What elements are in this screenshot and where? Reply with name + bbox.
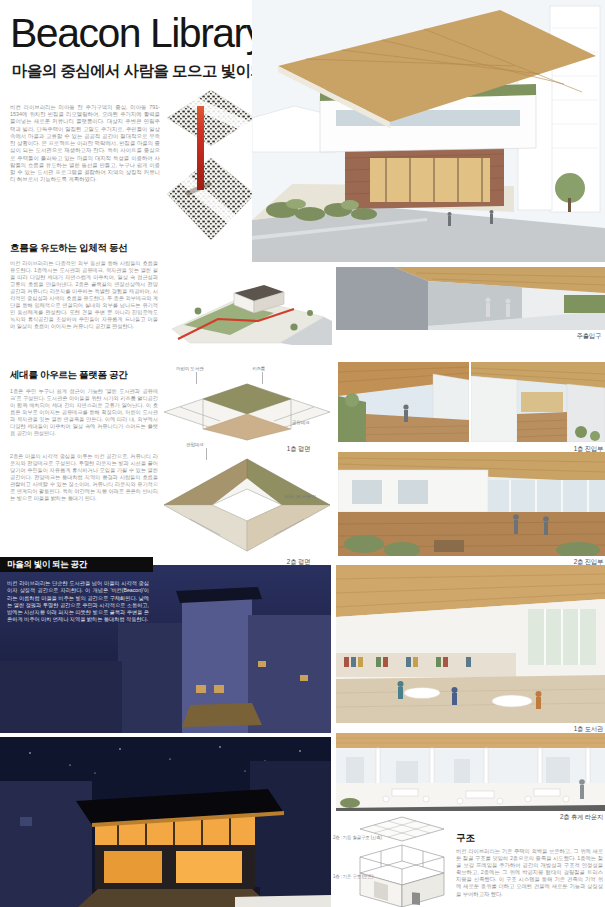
section-structure-title: 구조	[456, 832, 475, 845]
structure-label-level2: 2층 : 기둥 철골구조 (신축)	[333, 835, 391, 841]
structure-label-level1: 1층 : 기존 구조 (보존)	[333, 874, 391, 880]
plan-level1-axon-image	[160, 381, 335, 443]
plan2-leader-line	[206, 448, 207, 460]
entry2-render-image	[338, 452, 605, 556]
site-axon-image	[162, 267, 332, 345]
section-flow-body: 비컨 라이브러리는 다층적인 외부 동선을 통해 사람들의 흐름을 유도한다. …	[10, 260, 158, 360]
site-marker	[197, 106, 204, 190]
section-flow-title: 흐름을 유도하는 입체적 동선	[10, 242, 127, 255]
structure-exploded-axon-image	[344, 815, 450, 907]
section-light-title: 마을의 빛이 되는 공간	[0, 557, 153, 572]
poster-board: Beacon Library 마을의 중심에서 사람을 모으고 빛이되는 도서관…	[0, 0, 605, 907]
intro-paragraph: 비컨 라이브러리는 미아동 한 주거구역의 중심, 미아동 791-1534에 …	[10, 104, 160, 226]
site-map-diagram	[167, 90, 255, 240]
lounge2-render-image	[336, 733, 605, 811]
hero-render-image	[252, 0, 605, 262]
section-structure-body: 비컨 라이브러리는 기존 주택의 외벽을 보존하고, 그 위에 새로운 철골 구…	[456, 848, 603, 904]
entry1-render-b-image	[471, 362, 605, 442]
plan1-leader-line	[196, 372, 197, 384]
plan2-label-view-deck: 전망데크	[186, 442, 204, 448]
section-platform-body1: 1층은 주민 누구나 쉽게 접근이 가능한 '열린 도서관과 공유데크'로 구성…	[10, 388, 158, 450]
section-platform-title: 세대를 아우르는 플랫폼 공간	[10, 369, 127, 382]
main-entrance-render-image	[336, 267, 605, 330]
plan2-label-community-lounge: 커뮤니티 라운지	[284, 494, 316, 500]
caption-plan1: 1층 평면	[160, 445, 310, 454]
caption-main-entrance: 주출입구	[336, 332, 601, 341]
section-light-body: 비컨 라이브러리는 단순한 도서관을 넘어 마을의 시각적 중심이자 상징적 공…	[7, 580, 149, 638]
section-platform-body2: 2층은 마을의 시각적 중심을 이루는 비컨 공간으로, 커뮤니티 라운지와 전…	[10, 453, 158, 548]
plan-level2-axon-image	[160, 455, 335, 555]
plan1-label-shared-deck: 공유데크	[292, 420, 310, 426]
caption-lounge2: 2층 휴게 라운지	[455, 813, 603, 822]
plan1-label-childrens-library: 어린이 도서관	[176, 366, 203, 372]
plan1-leader-line	[262, 372, 263, 384]
night-render2-image	[0, 737, 331, 907]
entry1-render-a-image	[338, 362, 469, 442]
plan1-label-kids-room: 키즈룸	[252, 366, 265, 372]
library1-render-image	[336, 565, 605, 723]
page-title: Beacon Library	[10, 13, 265, 54]
